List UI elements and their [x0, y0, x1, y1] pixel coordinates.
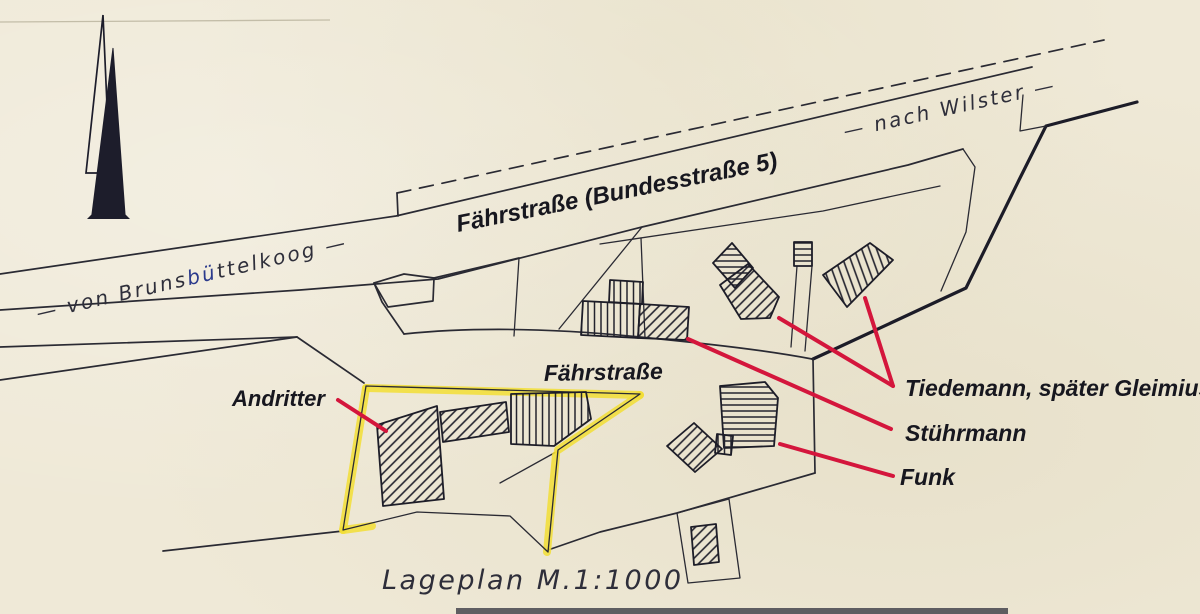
- site-plan-scan: Fährstraße (Bundesstraße 5) — nach Wilst…: [0, 0, 1200, 614]
- road-lower: [0, 337, 364, 383]
- road-b5: [0, 40, 1104, 310]
- building-south-small: [691, 524, 719, 565]
- site-plan-drawing: Fährstraße (Bundesstraße 5) — nach Wilst…: [0, 0, 1200, 614]
- path-south: [163, 452, 556, 551]
- scan-crease-line: [0, 20, 330, 22]
- label-road-old: Fährstraße: [544, 358, 664, 386]
- label-owner-tiedemann: Tiedemann, später Gleimius: [905, 375, 1200, 401]
- label-owner-andritter: Andritter: [231, 386, 326, 411]
- building-funk: [667, 382, 778, 472]
- label-direction-brunsbuettel: — von Brunsbüttelkoog —: [34, 230, 350, 325]
- leader-line-funk: [780, 444, 893, 476]
- north-arrow-icon: [86, 15, 130, 219]
- building-tiedemann-east: [823, 243, 893, 307]
- scan-bottom-band: [456, 608, 1008, 614]
- label-direction-wilster: — nach Wilster —: [841, 72, 1058, 142]
- label-owner-stuehrmann: Stührmann: [905, 420, 1026, 446]
- label-brunsbuettel-part2: ttelkoog —: [214, 230, 350, 283]
- building-strip: [794, 242, 812, 266]
- building-stuehrmann: [581, 280, 689, 340]
- building-tiedemann-west: [713, 243, 779, 319]
- leader-line-stuehrmann: [688, 339, 891, 429]
- label-owner-funk: Funk: [900, 464, 956, 490]
- junction-island: [374, 258, 519, 334]
- label-brunsbuettel-part1: — von Bruns: [34, 267, 190, 325]
- label-caption-scale: Lageplan M.1:1000: [382, 565, 684, 596]
